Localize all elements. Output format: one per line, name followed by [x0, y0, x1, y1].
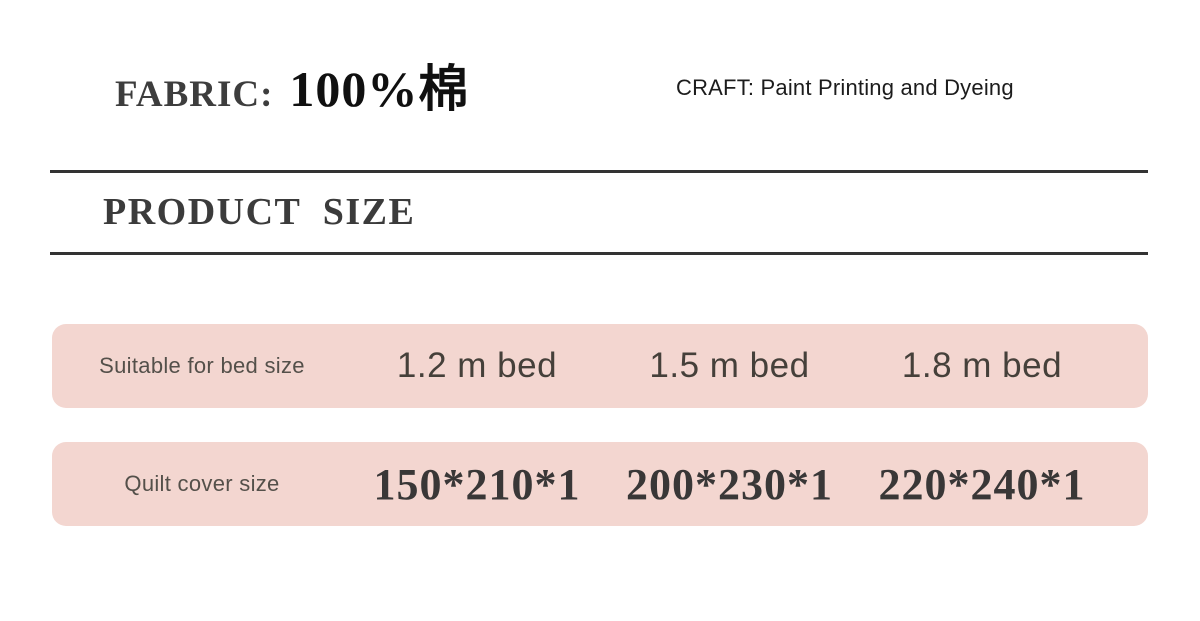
bed-size-value-2: 1.5 m bed: [602, 324, 857, 408]
fabric-value: 100%棉: [289, 64, 469, 114]
fabric-line: FABRIC: 100%棉: [115, 64, 469, 114]
row-label-bed-size: Suitable for bed size: [52, 324, 352, 408]
quilt-size-value-2: 200*230*1: [602, 442, 857, 526]
divider-bottom: [50, 252, 1148, 255]
size-table-row-quilt-cover: Quilt cover size 150*210*1 200*230*1 220…: [52, 442, 1148, 526]
divider-top: [50, 170, 1148, 173]
row-label-quilt-cover: Quilt cover size: [52, 442, 352, 526]
quilt-size-value-3: 220*240*1: [857, 442, 1107, 526]
size-table-row-bed-size: Suitable for bed size 1.2 m bed 1.5 m be…: [52, 324, 1148, 408]
product-spec-sheet: FABRIC: 100%棉 CRAFT: Paint Printing and …: [0, 0, 1200, 621]
craft-line: CRAFT: Paint Printing and Dyeing: [676, 76, 1014, 100]
fabric-label: FABRIC:: [115, 76, 273, 113]
section-title-product-size: PRODUCT SIZE: [103, 193, 415, 231]
bed-size-value-1: 1.2 m bed: [352, 324, 602, 408]
quilt-size-value-1: 150*210*1: [352, 442, 602, 526]
bed-size-value-3: 1.8 m bed: [857, 324, 1107, 408]
